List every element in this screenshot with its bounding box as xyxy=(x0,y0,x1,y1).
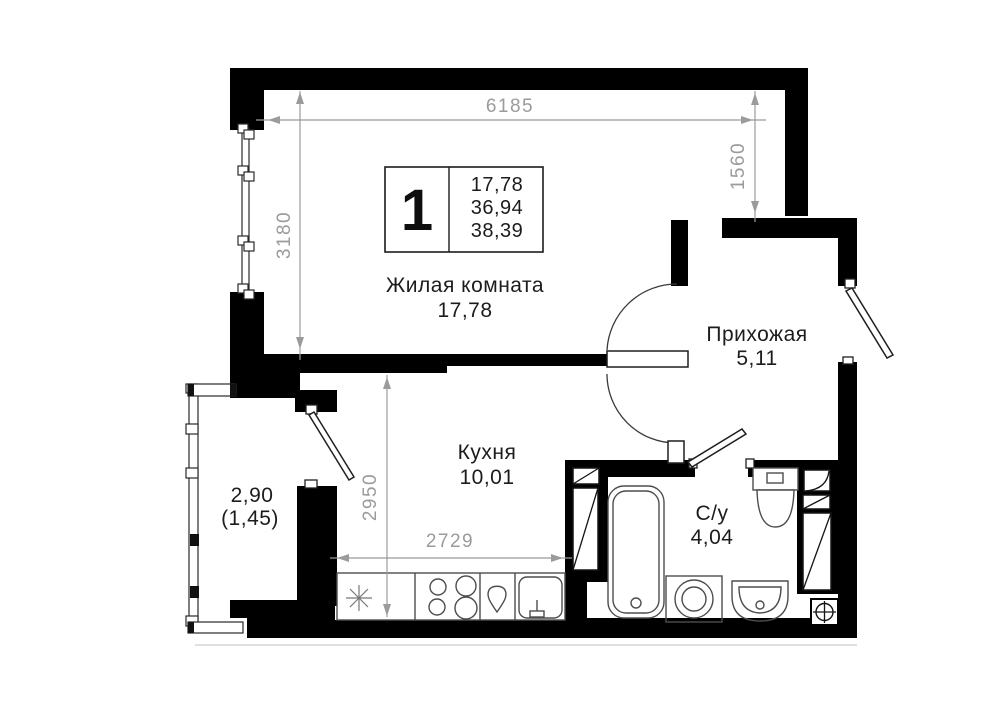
wall-segment xyxy=(230,370,300,398)
living-room-window xyxy=(238,124,254,299)
wall-segment xyxy=(565,582,587,622)
dim-living-width: 6185 xyxy=(486,96,534,117)
area-line: 17,78 xyxy=(471,174,524,196)
doors xyxy=(305,279,893,488)
balcony-area: 2,90 xyxy=(231,484,274,507)
dim-kitchen-width: 2729 xyxy=(426,531,474,552)
kitchen-door xyxy=(607,374,684,463)
wall-segment xyxy=(330,620,588,638)
glazing-post xyxy=(190,586,199,598)
wall-segment xyxy=(671,220,688,286)
washbasin-icon xyxy=(732,581,788,621)
duct-shaft-icon xyxy=(573,468,599,570)
duct-shaft-icon xyxy=(803,470,831,590)
bathroom-area: 4,04 xyxy=(691,526,734,549)
washing-machine-icon xyxy=(666,576,722,622)
kitchen-sink-icon xyxy=(519,577,562,618)
area-line: 38,39 xyxy=(471,220,524,242)
unit-info-box: 1 17,78 36,94 38,39 xyxy=(385,167,543,252)
balcony-area-coefficient: (1,45) xyxy=(221,507,279,530)
bathroom-door xyxy=(688,429,754,468)
kitchen-label: Кухня xyxy=(458,441,517,464)
stove-icon xyxy=(429,576,477,619)
wall-segment xyxy=(230,68,264,130)
entrance-door xyxy=(843,279,893,364)
ventilation-grille-icon xyxy=(811,599,838,625)
living-room-area: 17,78 xyxy=(437,299,492,322)
wall-segment xyxy=(785,88,808,216)
living-room-door xyxy=(607,284,688,367)
dim-living-depth: 3180 xyxy=(274,211,295,259)
wall-segment xyxy=(838,362,857,638)
room-count: 1 xyxy=(401,178,433,243)
hallway-area: 5,11 xyxy=(736,347,777,370)
glazing-post xyxy=(190,534,199,546)
dim-niche-depth: 1560 xyxy=(728,142,749,190)
balcony-door xyxy=(305,405,354,488)
floor-plan-page: 6185 3180 1560 2950 2729 1 17,78 36,94 3… xyxy=(0,0,1000,707)
glazing-end xyxy=(188,384,194,396)
drainer-icon xyxy=(488,586,506,612)
area-line: 36,94 xyxy=(471,197,524,219)
wall-segment xyxy=(297,486,337,606)
wall-segment xyxy=(247,616,335,638)
bathroom-label: С/у xyxy=(696,502,729,525)
glazing-end xyxy=(230,384,236,396)
kitchen-counter xyxy=(337,573,565,620)
glazing-end xyxy=(188,622,194,633)
wall-segment xyxy=(722,218,857,238)
bathtub-icon xyxy=(608,486,664,618)
hallway-label: Прихожая xyxy=(706,323,807,346)
living-room-label: Жилая комната xyxy=(386,274,544,297)
toilet-icon xyxy=(753,468,798,527)
kitchen-area: 10,01 xyxy=(459,466,514,489)
dim-kitchen-depth: 2950 xyxy=(360,473,381,521)
wall-segment xyxy=(230,68,808,90)
floor-plan: 6185 3180 1560 2950 2729 1 17,78 36,94 3… xyxy=(0,0,1000,707)
fridge-star-icon xyxy=(346,585,372,611)
